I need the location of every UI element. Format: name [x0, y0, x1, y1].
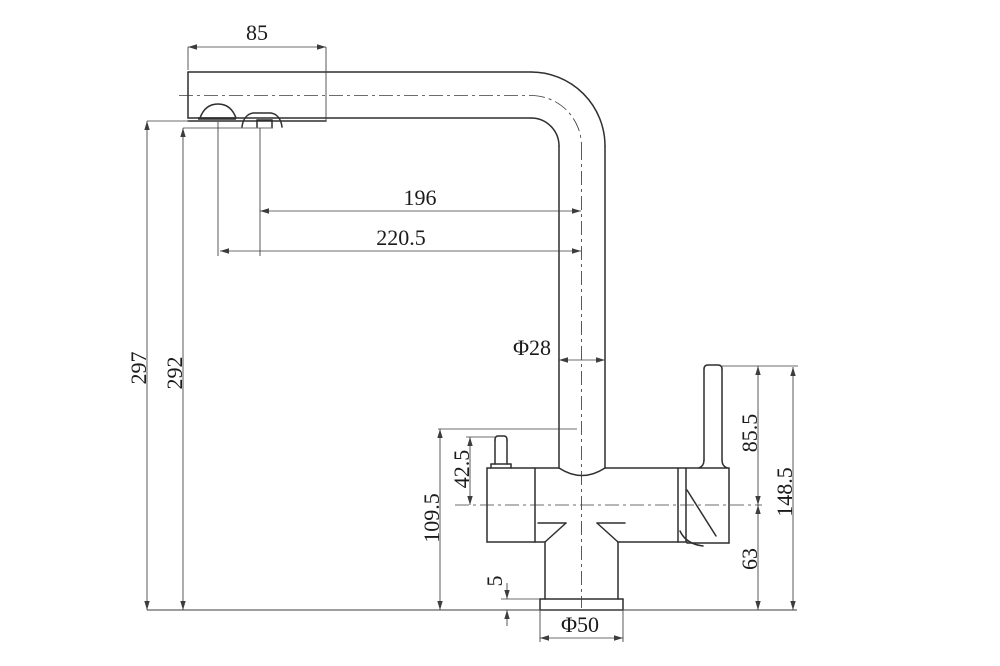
- centerlines: [179, 96, 762, 609]
- dim-label-148.5: 148.5: [772, 467, 797, 517]
- dim-label-5: 5: [482, 576, 507, 587]
- extension-lines: [147, 47, 798, 642]
- dimension-arrows: [144, 44, 795, 640]
- dim-label-phi28: Φ28: [513, 335, 551, 360]
- dim-label-220.5: 220.5: [376, 225, 426, 250]
- dim-label-109.5: 109.5: [419, 493, 444, 543]
- dim-label-63: 63: [737, 548, 762, 570]
- faucet-dimension-drawing: 85196220.5Φ28Φ50297292109.542.585.563148…: [0, 0, 1000, 666]
- dim-label-85: 85: [246, 20, 268, 45]
- dim-label-phi50: Φ50: [561, 612, 599, 637]
- dim-label-292: 292: [162, 357, 187, 390]
- dim-label-85.5: 85.5: [737, 414, 762, 453]
- faucet-outline: [188, 72, 729, 610]
- dimension-lines: [147, 47, 793, 638]
- drawing-page: 85196220.5Φ28Φ50297292109.542.585.563148…: [0, 0, 1000, 666]
- dim-label-297: 297: [126, 352, 151, 385]
- dim-label-196: 196: [404, 185, 437, 210]
- dim-label-42.5: 42.5: [449, 450, 474, 489]
